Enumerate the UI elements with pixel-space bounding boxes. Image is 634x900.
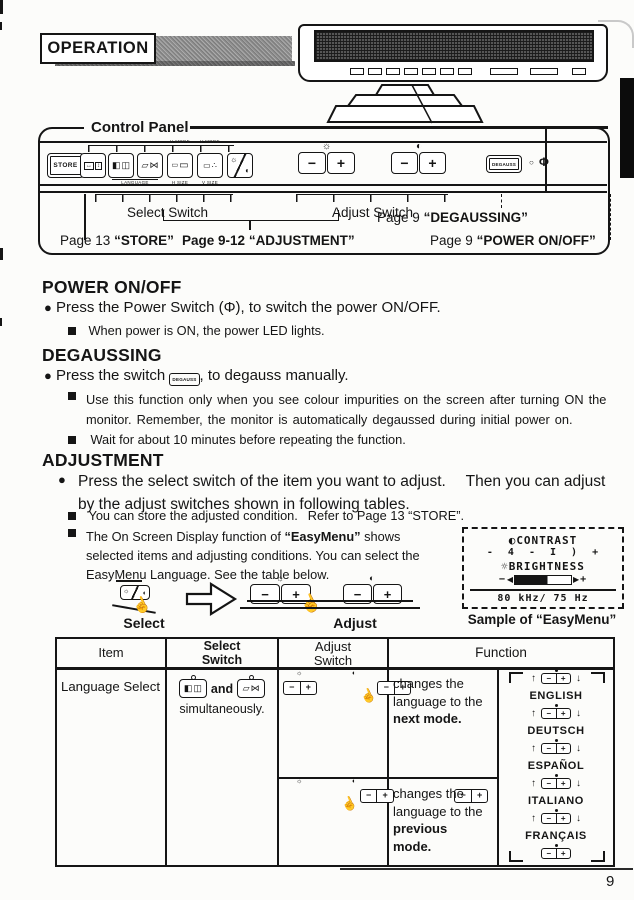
- small-rect-icon: ▭: [171, 162, 178, 169]
- control-panel-label: Control Panel: [84, 119, 196, 136]
- rect-icon: ▭: [203, 162, 211, 170]
- pressing-hand-icon: ☝: [357, 685, 378, 706]
- power-note: When power is ON, the power LED lights.: [68, 322, 325, 340]
- language-cycle-diagram: ↑−+↓ ENGLISH ↑−+↓ DEUTSCH ↑−+↓ ESPAÑOL ↑…: [501, 669, 611, 863]
- plus-glyph: +: [556, 849, 571, 858]
- v-size-label: V SIZE: [190, 180, 230, 185]
- h-position-icon: ↔: [84, 162, 94, 170]
- easymenu-caption: Sample of “EasyMenu”: [452, 612, 632, 627]
- bullet-icon: ●: [44, 368, 52, 383]
- osd-brightness-line: ☼BRIGHTNESS: [464, 560, 622, 573]
- col-header-select-line1: Select: [167, 640, 277, 654]
- adjust-button-icon: −+: [541, 813, 571, 824]
- adjust-button-icon: −+: [541, 778, 571, 789]
- adjust-button-icon: −+: [541, 743, 571, 754]
- power-ref: Page 9 “POWER ON/OFF”: [430, 233, 596, 248]
- v-position-icon: ↕: [95, 162, 102, 170]
- slider-right-arrow-icon: ▶: [573, 575, 579, 584]
- square-bullet-icon: [68, 512, 76, 520]
- bullet-icon: ●: [58, 472, 66, 487]
- brightness-adjust-icon: −+: [283, 681, 317, 695]
- square-bullet-icon: [68, 327, 76, 335]
- adjust-button-icon: −+: [541, 848, 571, 859]
- v-more-label: V MORE: [188, 139, 232, 144]
- function-em: next mode.: [393, 710, 493, 728]
- power-led-icon: ○: [529, 159, 534, 167]
- minus-glyph: −: [378, 682, 394, 694]
- flow-panel-line: [247, 600, 413, 602]
- sun-icon: ☼: [276, 574, 284, 583]
- flow-select-label: Select: [112, 615, 176, 631]
- trapezoid-icon: ▱: [243, 684, 250, 693]
- col-header-adjust-line1: Adjust: [279, 640, 387, 654]
- caption-em: “EasyMenu”: [536, 612, 616, 627]
- power-callout-line: [610, 194, 611, 240]
- power-bullet: ● Press the Power Switch (Φ), to switch …: [44, 299, 610, 316]
- adjustment-ref-title: “ADJUSTMENT”: [249, 233, 355, 248]
- degauss-callout-line: [501, 194, 502, 208]
- degaussing-heading: DEGAUSSING: [42, 345, 162, 366]
- col-header-select: Select Switch: [167, 640, 277, 668]
- geometry-button-icon: ▱ ⋈: [237, 679, 265, 698]
- caption-pre: Sample of: [468, 612, 533, 627]
- minus-glyph: −: [284, 682, 300, 694]
- page-title: OPERATION: [40, 33, 156, 64]
- select-callout-bracket: [95, 194, 233, 202]
- function-em2: mode.: [393, 838, 493, 856]
- col-header-adjust-line2: Switch: [279, 654, 387, 668]
- brightness-plus-button: +: [327, 152, 355, 174]
- adjustment-note1: You can store the adjusted condition. Re…: [68, 507, 464, 525]
- up-arrow-icon: ↑: [531, 814, 536, 824]
- flow-adjust-label: Adjust: [318, 615, 392, 631]
- item-cell: Language Select: [61, 679, 163, 694]
- function-line1: changes the: [393, 675, 493, 693]
- osd-contrast-line: ◐CONTRAST: [464, 534, 622, 547]
- pincushion-icon: ⋈: [251, 684, 260, 693]
- degaussing-bullet-pre: Press the switch: [56, 367, 165, 384]
- select-combo: ◧ ◫ and ▱ ⋈: [167, 679, 277, 698]
- minus-glyph: −: [542, 744, 556, 753]
- adjustment-ref: Page 9-12 “ADJUSTMENT”: [182, 233, 355, 248]
- table-grid-line: [387, 639, 389, 865]
- power-symbol-icon: Φ: [539, 156, 549, 168]
- function-line1: changes the: [393, 785, 493, 803]
- contrast-icon: ◐: [352, 670, 356, 677]
- flow-arrow-icon: [185, 580, 239, 618]
- easymenu-sample-box: ◐CONTRAST - 4 - I ) + ☼BRIGHTNESS − ◀ ▶ …: [462, 527, 624, 609]
- table-grid-line: [277, 639, 279, 865]
- footer-rule: [340, 868, 633, 870]
- language-francais: FRANÇAIS: [501, 831, 611, 842]
- split-square-icon: ◫: [122, 161, 131, 170]
- cycle-step: ↑−+↓: [501, 778, 611, 789]
- square-bullet-icon: [68, 392, 76, 400]
- store-ref-title: “STORE”: [114, 233, 174, 248]
- degaussing-bullet: ● Press the switch DEGAUSS, to degauss m…: [44, 367, 610, 386]
- table-row-rule: [277, 777, 499, 779]
- adjust-button-icon: −+: [541, 708, 571, 719]
- panel-bezel-lower-line: [40, 191, 607, 193]
- degaussing-ref-page: Page 9: [377, 210, 420, 225]
- minus-glyph: −: [542, 674, 556, 683]
- adjustment-note2: The On Screen Display function of “EasyM…: [68, 527, 440, 585]
- flow-panel-line: [240, 607, 420, 609]
- language-deutsch: DEUTSCH: [501, 726, 611, 737]
- down-arrow-icon: ↓: [576, 709, 581, 719]
- minus-glyph: −: [361, 790, 377, 802]
- simultaneously-label: simultaneously.: [167, 702, 277, 716]
- contrast-minus-button: −: [391, 152, 418, 174]
- select-button-bright-contrast: ☼ ◐: [227, 153, 253, 178]
- osd-contrast-scale: - 4 - I ) +: [464, 547, 622, 558]
- wrap-corner: [591, 851, 605, 862]
- function-line2: language to the: [393, 803, 493, 821]
- degauss-button: DEGAUSS: [486, 155, 522, 173]
- half-square-icon: ◧: [112, 161, 121, 170]
- plus-glyph: +: [556, 674, 571, 683]
- square-bullet-icon: [68, 529, 76, 537]
- down-arrow-icon: ↓: [576, 779, 581, 789]
- select-button-language: ◧ ◫: [108, 153, 134, 178]
- language-english: ENGLISH: [501, 691, 611, 702]
- degaussing-note1-text: Use this function only when you see colo…: [86, 390, 614, 430]
- slider-bar: [514, 575, 572, 585]
- pincushion-icon: ⋈: [149, 161, 158, 170]
- scan-artifact: [0, 0, 3, 14]
- monitor-stand: [320, 84, 490, 124]
- contrast-plus-button: +: [419, 152, 446, 174]
- power-bullet-text: Press the Power Switch (Φ), to switch th…: [56, 299, 441, 316]
- select-button-v-size: ▭ ∴: [197, 153, 223, 178]
- language-espanol: ESPAÑOL: [501, 761, 611, 772]
- plus-glyph: +: [556, 744, 571, 753]
- up-arrow-icon: ↑: [531, 744, 536, 754]
- adjustment-note2-text: The On Screen Display function of “EasyM…: [86, 527, 440, 585]
- minus-glyph: −: [542, 849, 556, 858]
- cycle-step: ↑−+↓: [501, 708, 611, 719]
- down-arrow-icon: ↓: [576, 744, 581, 754]
- osd-brightness-label: BRIGHTNESS: [509, 560, 585, 573]
- sun-icon: ☼: [501, 560, 509, 573]
- monitor-illustration-body: [298, 24, 608, 82]
- power-ref-title: “POWER ON/OFF”: [477, 233, 596, 248]
- table-grid-line: [165, 639, 167, 865]
- dots-icon: ∴: [212, 162, 217, 170]
- degaussing-note2: Wait for about 10 minutes before repeati…: [68, 431, 406, 449]
- degaussing-note2-text: Wait for about 10 minutes before repeati…: [90, 432, 405, 447]
- chapter-edge-tab: [620, 78, 634, 178]
- table-grid-line: [497, 669, 499, 865]
- minus-glyph: −: [542, 709, 556, 718]
- col-header-function: Function: [389, 645, 613, 660]
- plus-glyph: +: [556, 779, 571, 788]
- sun-icon: ☼: [230, 156, 237, 164]
- cycle-step: ↑−+↓: [501, 813, 611, 824]
- adjustment-table: Item Select Switch Adjust Switch Functio…: [55, 637, 615, 867]
- degaussing-ref-title: “DEGAUSSING”: [424, 210, 528, 225]
- sun-icon: ☼: [296, 778, 302, 785]
- adjustment-heading: ADJUSTMENT: [42, 450, 164, 471]
- select-switch-cell: ◧ ◫ and ▱ ⋈ simultaneously.: [167, 679, 277, 716]
- adjustment-brace-tick: [249, 220, 251, 230]
- function-cell-previous: changes the language to the previous mod…: [393, 785, 493, 855]
- manual-page: OPERATION Control Panel H MORE V MORE: [0, 0, 634, 900]
- sun-icon: ☼: [296, 670, 302, 677]
- select-button-position: ↔ ↕: [80, 153, 106, 178]
- power-heading: POWER ON/OFF: [42, 277, 181, 298]
- monitor-bezel-buttons: [350, 68, 586, 75]
- note2-easymenu: “EasyMenu”: [284, 529, 360, 544]
- minus-glyph: −: [499, 574, 506, 585]
- adjust-button-icon: −+: [541, 673, 571, 684]
- col-header-item: Item: [57, 645, 165, 660]
- down-arrow-icon: ↓: [576, 674, 581, 684]
- scan-artifact: [0, 248, 3, 260]
- down-arrow-icon: ↓: [576, 814, 581, 824]
- wrap-corner: [509, 851, 523, 862]
- trapezoid-icon: ▱: [142, 161, 149, 170]
- power-note-text: When power is ON, the power LED lights.: [88, 323, 324, 338]
- function-em: previous: [393, 820, 493, 838]
- minus-glyph: −: [542, 779, 556, 788]
- store-button: STORE: [47, 153, 84, 178]
- plus-glyph: +: [580, 574, 587, 585]
- power-ref-page: Page 9: [430, 233, 473, 248]
- contrast-icon: ◐: [352, 778, 356, 785]
- degauss-key-icon: DEGAUSS: [169, 373, 199, 386]
- language-italiano: ITALIANO: [501, 796, 611, 807]
- monitor-screen: [314, 30, 594, 62]
- store-ref: Page 13 “STORE”: [60, 233, 174, 248]
- adjustment-note1-text: You can store the adjusted condition. Re…: [88, 508, 464, 523]
- col-header-adjust: Adjust Switch: [279, 640, 387, 669]
- osd-rule: [470, 589, 616, 591]
- minus-glyph: −: [542, 814, 556, 823]
- plus-glyph: +: [376, 790, 393, 802]
- adjustment-brace: [163, 210, 339, 221]
- osd-brightness-slider: − ◀ ▶ +: [464, 574, 622, 585]
- select-button-geometry: ▱ ⋈: [137, 153, 163, 178]
- function-cell-next: changes the language to the next mode.: [393, 675, 493, 728]
- flow-panel-line: [116, 580, 142, 582]
- cycle-step: ↑−+↓: [501, 743, 611, 754]
- degaussing-note1: Use this function only when you see colo…: [68, 390, 614, 430]
- osd-contrast-label: CONTRAST: [516, 534, 577, 547]
- pressing-hand-icon: ☝: [338, 793, 359, 814]
- language-label: LANGUAGE: [110, 180, 160, 185]
- select-buttons-bracket: [88, 145, 234, 152]
- degaussing-ref: Page 9 “DEGAUSSING”: [377, 210, 528, 225]
- col-header-select-line2: Switch: [167, 654, 277, 668]
- scan-artifact: [0, 22, 2, 30]
- scan-artifact: [0, 318, 2, 326]
- language-button-icon: ◧ ◫: [179, 679, 207, 698]
- large-rect-icon: ▭: [179, 161, 188, 171]
- plus-glyph: +: [556, 709, 571, 718]
- language-cycle-rows: ↑−+↓ ENGLISH ↑−+↓ DEUTSCH ↑−+↓ ESPAÑOL ↑…: [501, 669, 611, 863]
- half-square-icon: ◧: [184, 684, 193, 693]
- contrast-circle-icon: ◐: [416, 142, 422, 152]
- plus-glyph: +: [556, 814, 571, 823]
- slider-left-arrow-icon: ◀: [507, 575, 513, 584]
- square-bullet-icon: [68, 436, 76, 444]
- adjustment-ref-page: Page 9-12: [182, 233, 245, 248]
- note2-pre: The On Screen Display function of: [86, 529, 284, 544]
- bullet-icon: ●: [44, 300, 52, 315]
- up-arrow-icon: ↑: [531, 674, 536, 684]
- and-label: and: [211, 682, 233, 696]
- up-arrow-icon: ↑: [531, 779, 536, 789]
- wrap-corner: [591, 672, 605, 683]
- contrast-icon: ◐: [369, 574, 374, 583]
- up-arrow-icon: ↑: [531, 709, 536, 719]
- osd-frequency: 80 kHz/ 75 Hz: [464, 593, 622, 604]
- sun-icon: ☼: [123, 588, 129, 595]
- brightness-adjust-icon: −+: [360, 789, 394, 803]
- brightness-minus-button: −: [298, 152, 326, 174]
- degaussing-bullet-post: , to degauss manually.: [200, 367, 349, 384]
- select-button-h-size: ▭ ▭: [167, 153, 193, 178]
- page-number: 9: [606, 873, 614, 890]
- split-square-icon: ◫: [193, 684, 202, 693]
- contrast-icon: ◐: [245, 167, 250, 175]
- adjust-callout-bracket: [296, 194, 448, 202]
- brightness-sun-icon: ☼: [322, 142, 331, 152]
- wrap-corner: [509, 672, 523, 683]
- plus-glyph: +: [300, 682, 317, 694]
- store-ref-page: Page 13: [60, 233, 110, 248]
- function-line2: language to the: [393, 693, 493, 711]
